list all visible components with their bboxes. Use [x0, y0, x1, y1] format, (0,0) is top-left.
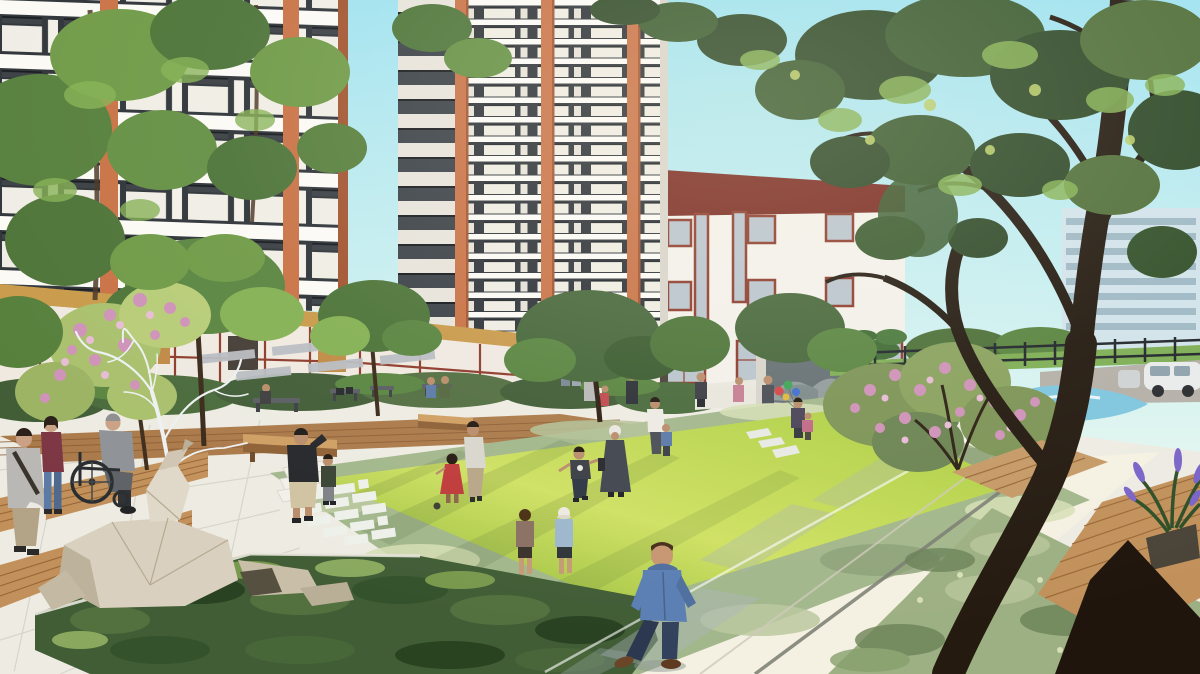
scene-canvas: [0, 0, 1200, 674]
sunlight-glow: [0, 0, 1200, 674]
courtyard-rendering: Sunlit residential courtyard rendering: …: [0, 0, 1200, 674]
